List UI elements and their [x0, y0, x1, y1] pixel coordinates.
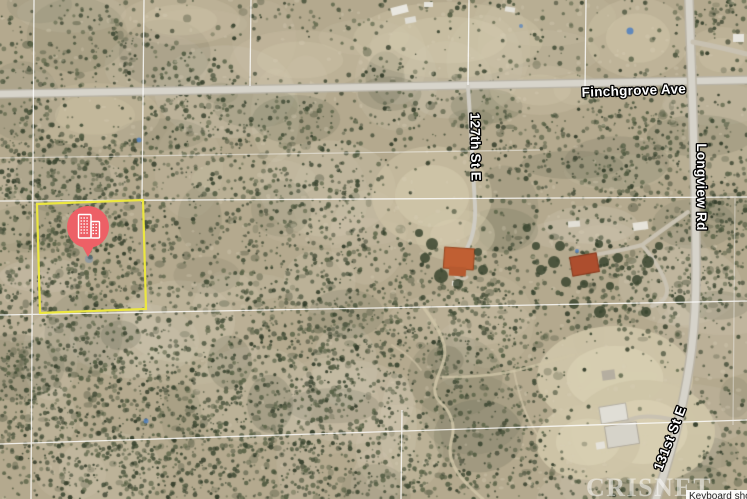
property-marker[interactable]	[67, 206, 109, 257]
road-label-131st: 131st St E	[651, 404, 689, 472]
keyboard-shortcuts-button[interactable]: Keyboard shortcuts	[686, 490, 747, 499]
road-label-finchgrove: Finchgrove Ave	[581, 81, 686, 100]
section-grid-lines	[0, 0, 747, 499]
road-label-longview: Longview Rd	[694, 143, 709, 230]
map-overlay: CRISNET Finchgrove Ave 127th St E Longvi…	[0, 0, 747, 499]
road-label-127th: 127th St E	[467, 113, 483, 182]
map-viewport[interactable]: CRISNET Finchgrove Ave 127th St E Longvi…	[0, 0, 747, 499]
attribution-text: Keyboard shortcuts	[689, 491, 747, 499]
